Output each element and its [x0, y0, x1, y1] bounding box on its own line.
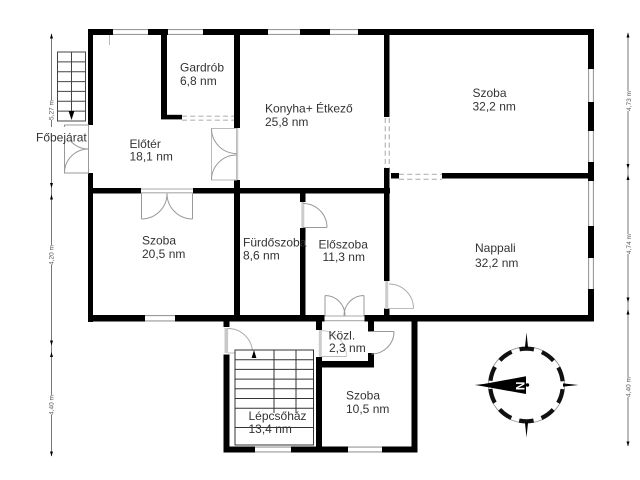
svg-text:Fürdőszoba: Fürdőszoba [243, 236, 307, 250]
svg-text:Nappali: Nappali [475, 241, 516, 255]
svg-text:2,3 nm: 2,3 nm [329, 341, 366, 355]
svg-text:Szoba: Szoba [473, 86, 507, 100]
svg-text:25,8 nm: 25,8 nm [265, 115, 308, 129]
svg-text:10,5 nm: 10,5 nm [346, 402, 389, 416]
svg-text:18,1 nm: 18,1 nm [130, 150, 173, 164]
svg-text:13,4 nm: 13,4 nm [249, 422, 292, 436]
svg-text:Szoba: Szoba [346, 389, 380, 403]
svg-text:4,40 m: 4,40 m [49, 395, 56, 415]
svg-text:20,5 nm: 20,5 nm [142, 247, 185, 261]
svg-text:8,6 nm: 8,6 nm [243, 249, 280, 263]
svg-text:Lépcsőház: Lépcsőház [249, 409, 307, 423]
svg-text:32,2 nm: 32,2 nm [475, 256, 518, 270]
svg-text:Gardrób: Gardrób [180, 61, 224, 75]
svg-text:32,2 nm: 32,2 nm [473, 100, 516, 114]
svg-text:Főbejárat: Főbejárat [36, 131, 87, 145]
svg-text:4,73 m: 4,73 m [626, 91, 633, 111]
svg-text:Konyha+ Étkező: Konyha+ Étkező [265, 101, 353, 116]
svg-text:4,74 m: 4,74 m [626, 234, 633, 254]
svg-text:4,20 m: 4,20 m [49, 245, 56, 265]
svg-text:N: N [514, 382, 528, 391]
svg-text:4,40 m: 4,40 m [626, 377, 633, 397]
svg-text:5,27 m: 5,27 m [49, 100, 56, 120]
svg-text:Szoba: Szoba [142, 234, 176, 248]
svg-text:6,8 nm: 6,8 nm [180, 74, 217, 88]
svg-text:11,3 nm: 11,3 nm [323, 250, 365, 264]
